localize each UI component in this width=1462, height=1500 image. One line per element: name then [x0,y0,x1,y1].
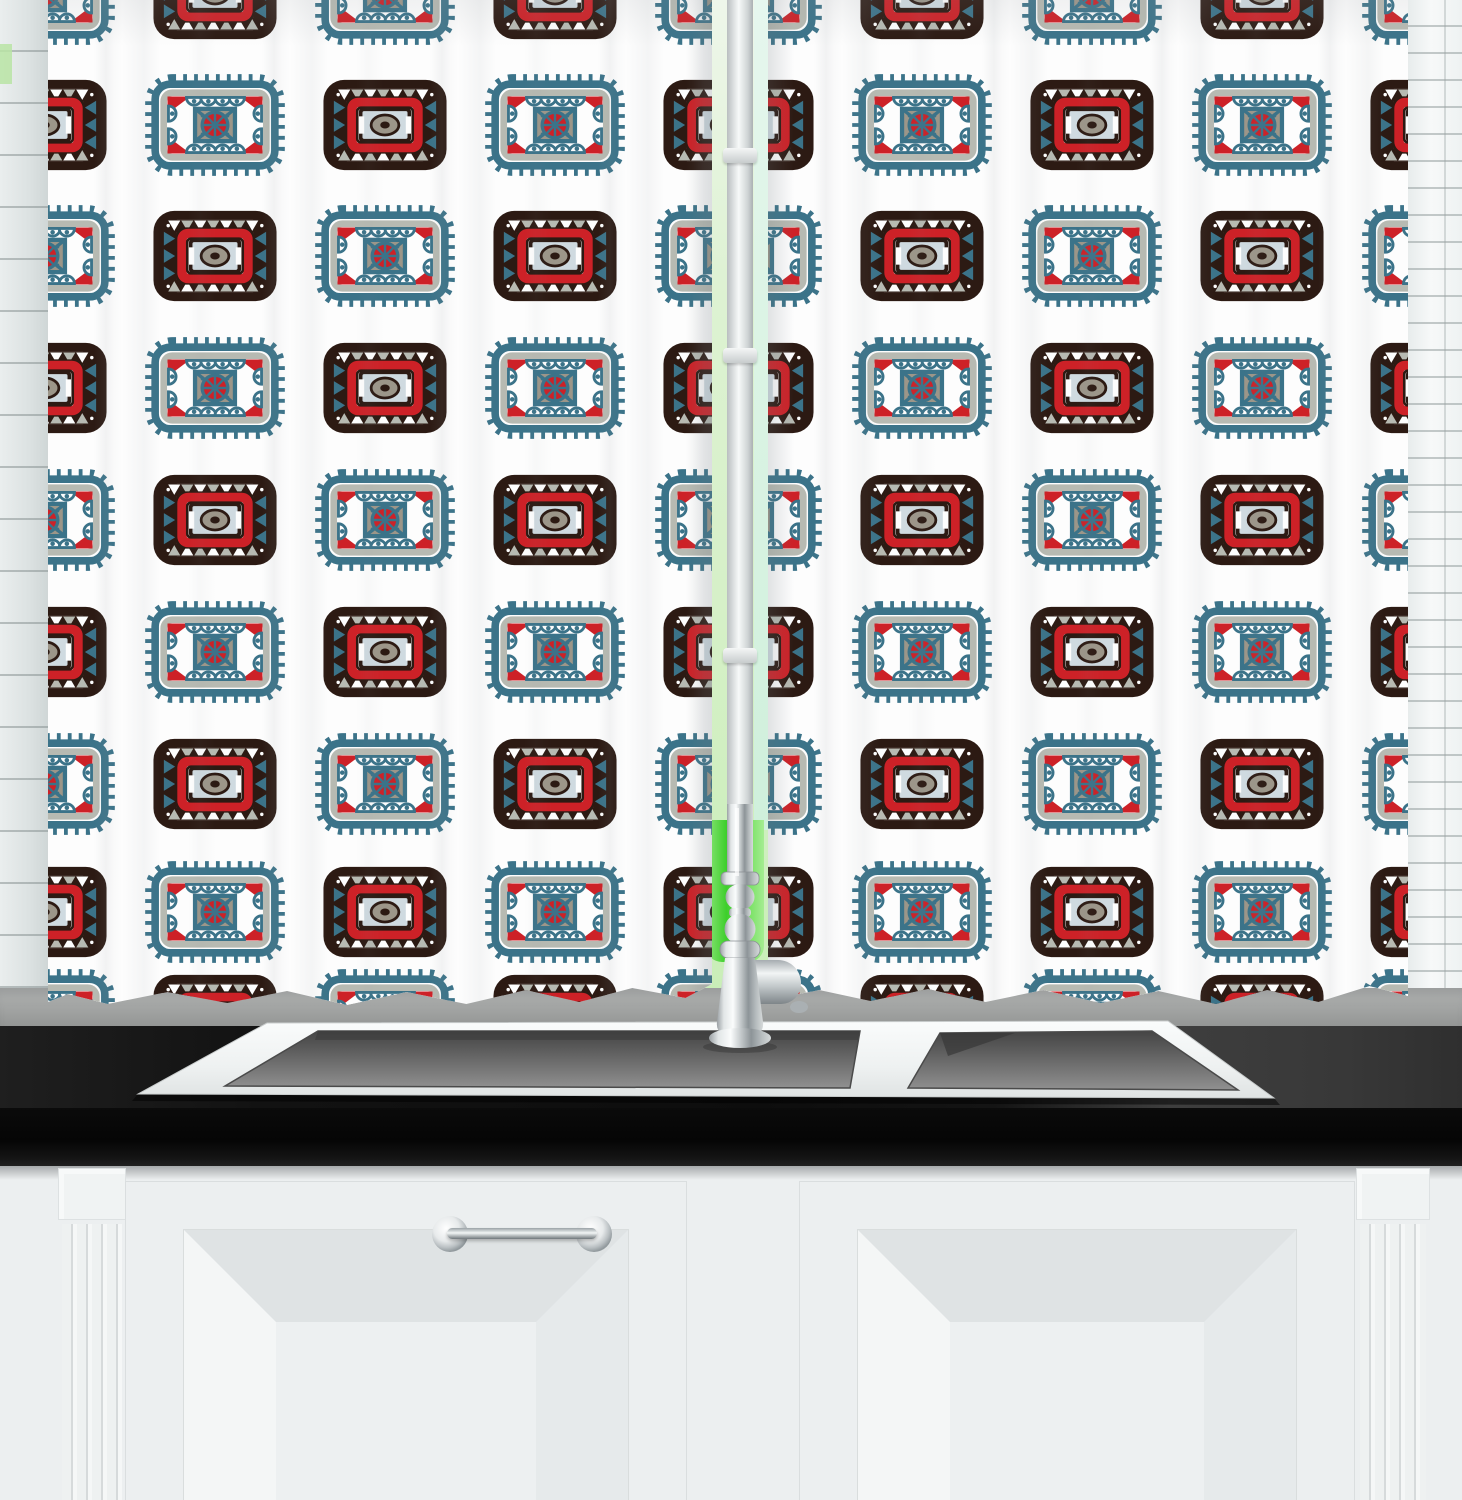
door-recessed-panel [184,1230,628,1500]
pilaster-flutes [1360,1224,1426,1500]
pilaster-cap [58,1168,126,1220]
motif-brown-mat [851,0,993,46]
faucet-ball-upper [726,884,755,910]
motif-teal-mat [1356,199,1408,313]
motif-teal-mat [309,727,461,841]
cabinet-door-right[interactable] [800,1182,1354,1500]
faucet-riser-pipe [727,804,753,880]
motif-teal-mat [846,595,998,709]
motif-brown-mat [48,336,116,440]
motif-brown-mat [144,204,286,308]
handle-bar [447,1228,597,1239]
motif-brown-mat [1021,336,1163,440]
faucet-ball-lower [725,914,756,944]
motif-brown-mat [1191,204,1333,308]
motif-teal-mat [1016,0,1168,51]
motif-teal-mat [309,463,461,577]
faucet-flange [721,872,759,885]
motif-teal-mat [846,331,998,445]
motif-teal-mat [309,199,461,313]
motif-brown-mat [484,0,626,46]
pilaster-flutes [62,1224,122,1500]
motif-brown-mat [1191,732,1333,836]
motif-teal-mat [1016,727,1168,841]
motif-teal-mat [48,463,121,577]
faucet-collar [720,941,760,958]
pilaster-right [1356,1168,1430,1500]
motif-brown-mat [144,732,286,836]
motif-teal-mat [48,727,121,841]
faucet-body [717,958,763,1038]
motif-teal-mat [139,595,291,709]
motif-teal-mat [1356,727,1408,841]
motif-teal-mat [309,0,461,51]
motif-brown-mat [144,0,286,46]
rod-clip [723,348,757,363]
motif-brown-mat [484,468,626,572]
motif-teal-mat [48,0,121,51]
motif-brown-mat [1361,336,1408,440]
motif-brown-mat [1361,73,1408,177]
motif-brown-mat [1021,600,1163,704]
motif-teal-mat [1356,0,1408,51]
faucet-nozzle [790,1001,808,1013]
motif-brown-mat [1191,468,1333,572]
green-reflection-sliver [0,44,12,84]
motif-brown-mat [314,860,456,964]
motif-teal-mat [139,855,291,969]
cabinets [0,1164,1462,1500]
cabinet-handle-left[interactable] [432,1216,612,1254]
motif-teal-mat [846,855,998,969]
motif-brown-mat [144,468,286,572]
motif-teal-mat [1016,463,1168,577]
faucet-highlight [735,808,739,876]
motif-brown-mat [484,732,626,836]
motif-brown-mat [314,336,456,440]
motif-brown-mat [48,600,116,704]
motif-teal-mat [139,331,291,445]
motif-brown-mat [851,732,993,836]
motif-brown-mat [1021,73,1163,177]
motif-brown-mat [1361,860,1408,964]
right-panel [768,0,1408,1012]
rod-clip [723,648,757,663]
motif-teal-mat [1016,199,1168,313]
motif-brown-mat [1191,0,1333,46]
motif-teal-mat [48,199,121,313]
pilaster-cap [1356,1168,1430,1220]
counter-overhang-shadow [0,1164,1462,1180]
motif-teal-mat [139,68,291,182]
motif-teal-mat [1356,463,1408,577]
motif-teal-mat [479,855,631,969]
motif-brown-mat [48,73,116,177]
tile-wall-right [1406,0,1462,1006]
motif-brown-mat [484,204,626,308]
faucet-base [709,1028,771,1048]
cabinet-door-left[interactable] [126,1182,686,1500]
kitchen-scene [0,0,1462,1500]
motif-brown-mat [851,468,993,572]
left-panel [48,0,712,1012]
motif-teal-mat [479,331,631,445]
motif-brown-mat [48,860,116,964]
gap-aqua-streak [754,0,768,830]
door-recessed-panel [858,1230,1296,1500]
motif-teal-mat [479,68,631,182]
tile-wall-left [0,0,48,1006]
motif-teal-mat [1186,331,1338,445]
rod-clip [723,148,757,163]
motif-brown-mat [1021,860,1163,964]
motif-teal-mat [846,68,998,182]
motif-brown-mat [851,204,993,308]
motif-teal-mat [1186,855,1338,969]
motif-brown-mat [314,73,456,177]
faucet [655,804,825,1062]
motif-brown-mat [1361,600,1408,704]
motif-teal-mat [1186,68,1338,182]
curtain-support-rod [727,0,753,882]
motif-teal-mat [479,595,631,709]
motif-brown-mat [314,600,456,704]
countertop-front-edge [0,1108,1462,1166]
motif-teal-mat [1186,595,1338,709]
pilaster-left [58,1168,126,1500]
